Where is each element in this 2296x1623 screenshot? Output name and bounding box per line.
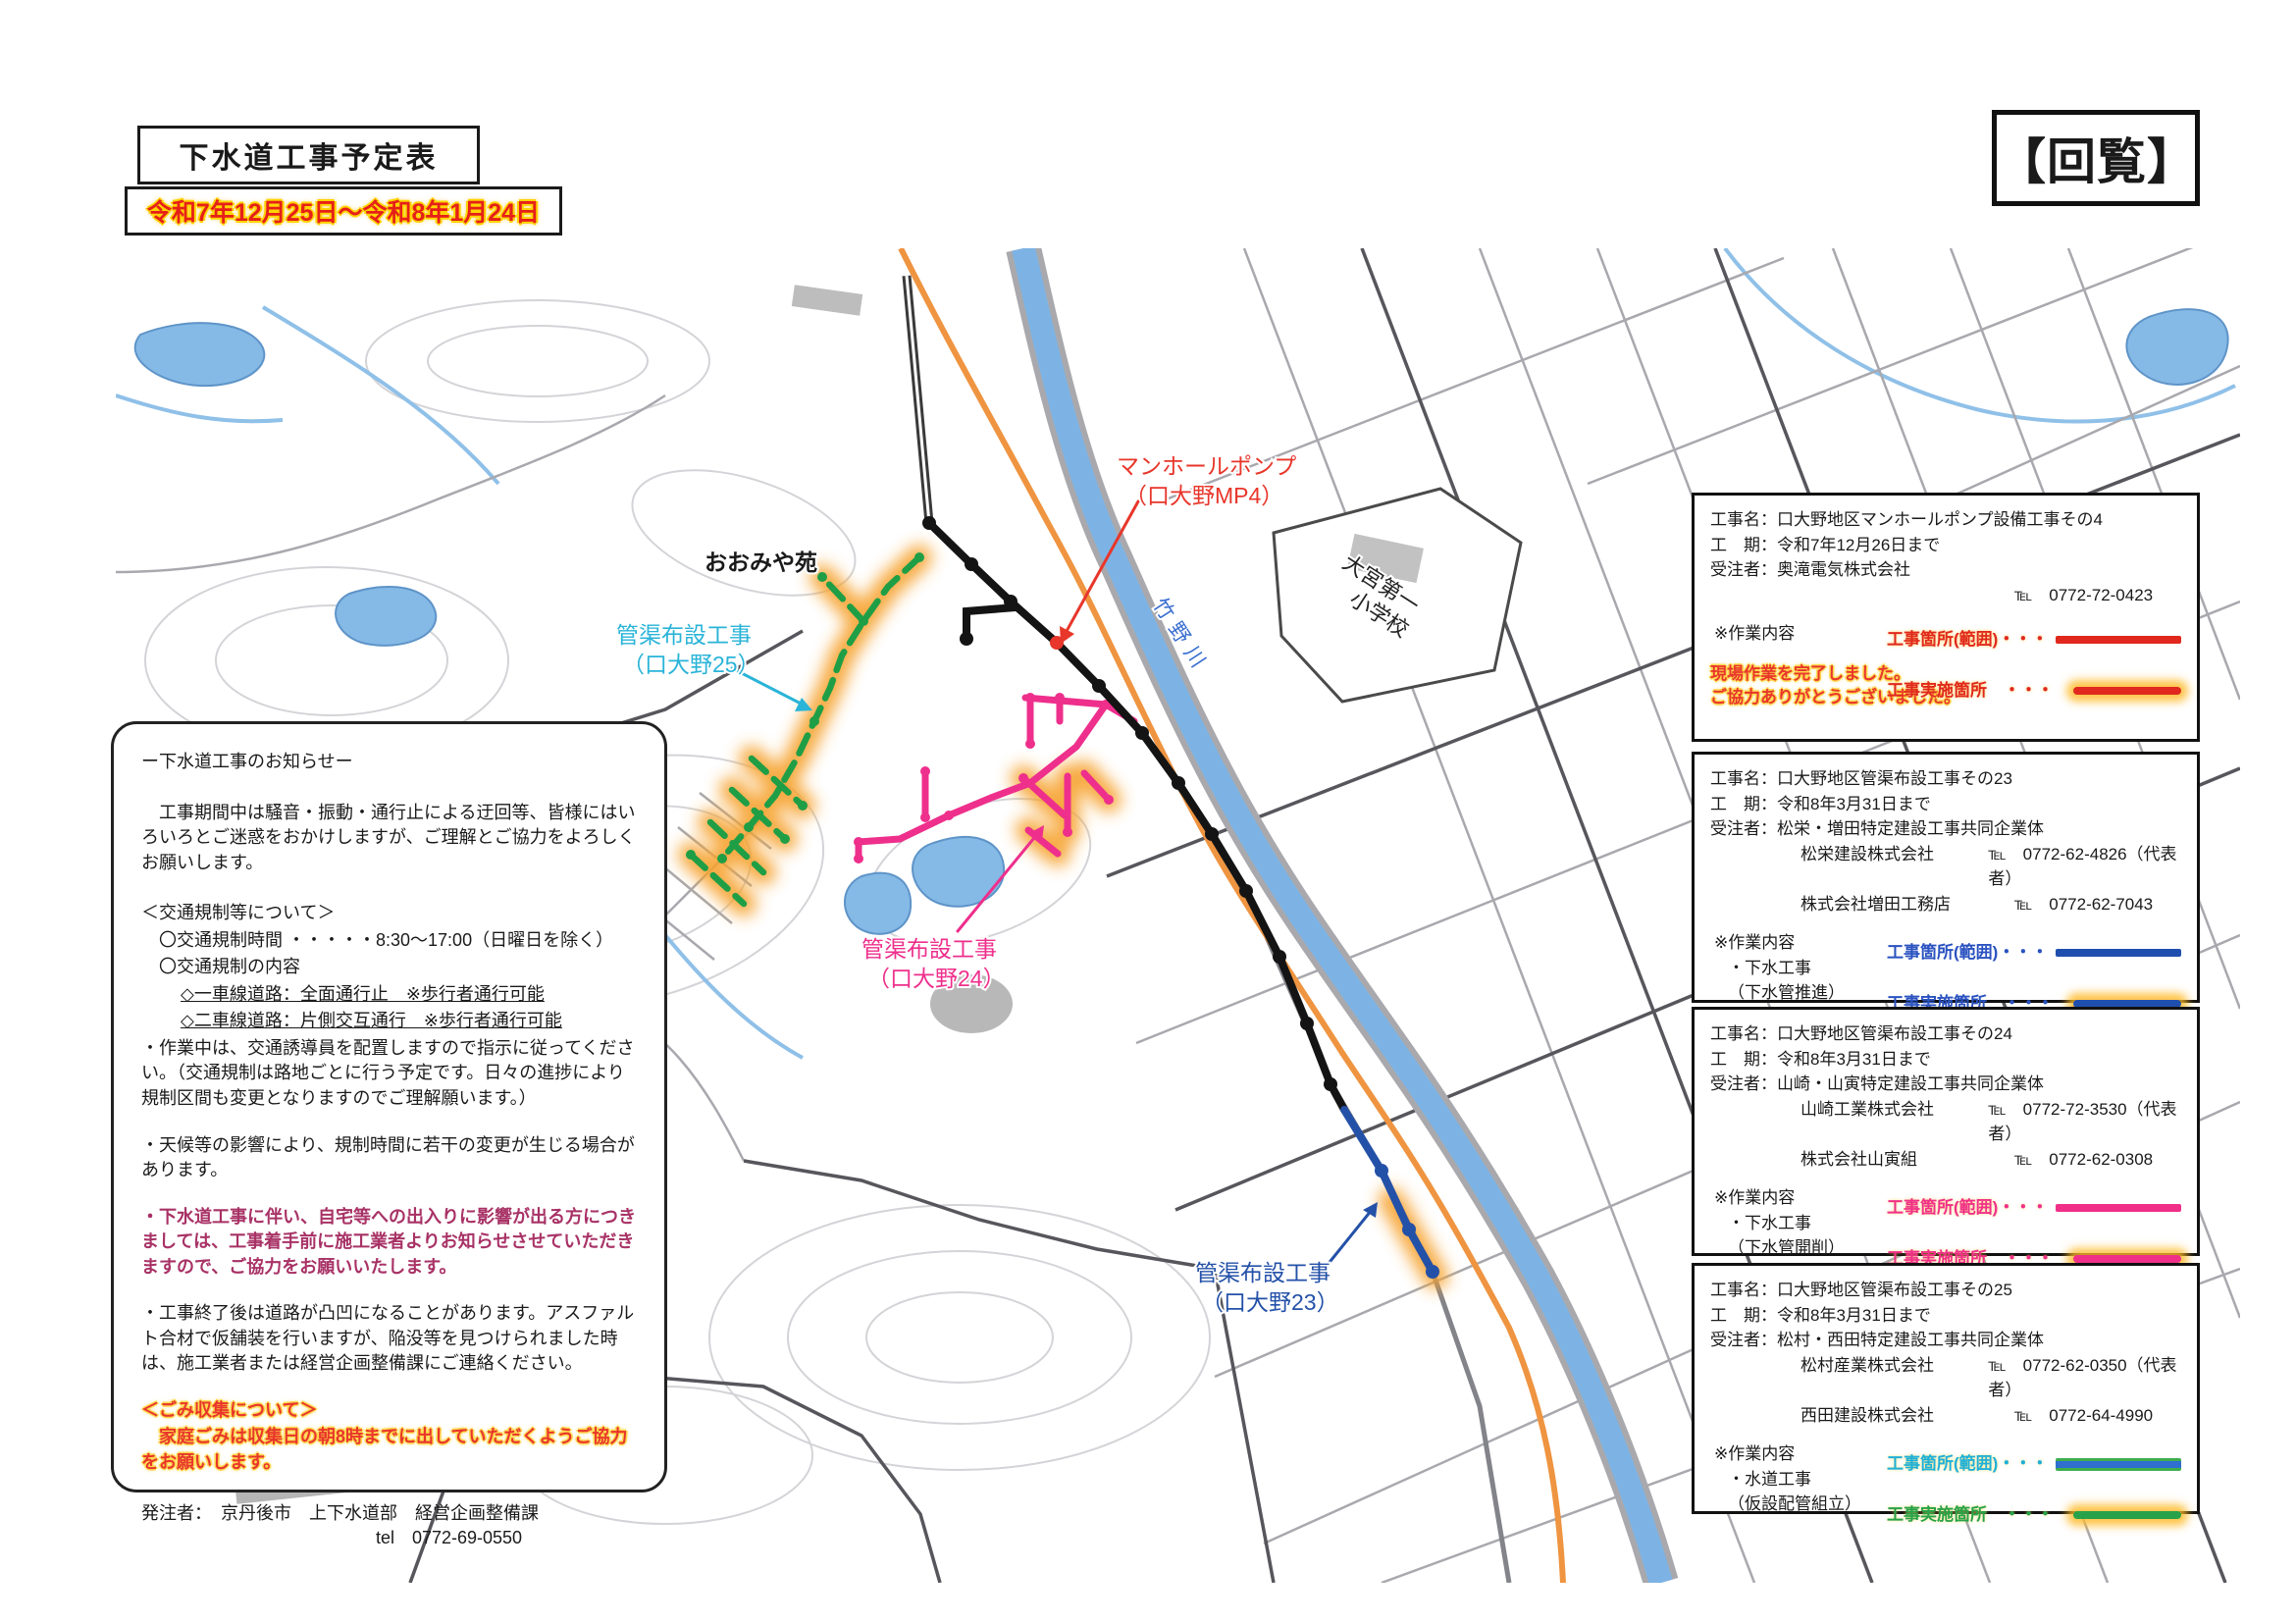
project-orderer: 受注者：松村・西田特定建設工事共同企業体 — [1710, 1328, 2183, 1353]
project-orderer: 受注者：山崎・山寅特定建設工事共同企業体 — [1710, 1072, 2183, 1097]
company-tel: ℡ 0772-72-3530（代表者） — [1988, 1097, 2183, 1147]
company-tel: ℡ 0772-72-0423 — [2014, 583, 2153, 608]
schedule-date-range: 令和7年12月25日～令和8年1月24日 — [125, 186, 562, 236]
mp4-label-line2: （口大野MP4） — [1124, 483, 1283, 508]
legend-range-label: 工事箇所(範囲)・・・ — [1887, 627, 2048, 653]
project-name: 工事名：口大野地区マンホールポンプ設備工事その4 — [1710, 507, 2183, 533]
company-row: 山崎工業株式会社 ℡ 0772-72-3530（代表者） — [1800, 1097, 2183, 1147]
route-23-blue — [1344, 1110, 1439, 1279]
project-box-25: 工事名：口大野地区管渠布設工事その25 工 期：令和8年3月31日まで 受注者：… — [1692, 1263, 2200, 1514]
river-takeno — [1023, 248, 1661, 1583]
legend-range-label: 工事箇所(範囲)・・・ — [1887, 1451, 2048, 1477]
route25-label-line2: （口大野25） — [622, 652, 760, 677]
company-row: 株式会社山寅組 ℡ 0772-62-0308 — [1800, 1147, 2183, 1173]
project-period: 工 期：令和7年12月26日まで — [1710, 533, 2183, 558]
scanned-notice-page: { "header": { "title": "下水道工事予定表", "date… — [0, 0, 2296, 1623]
legend-range-line — [2056, 636, 2181, 644]
company-tel: ℡ 0772-62-0350（代表者） — [1988, 1353, 2183, 1403]
project-box-23: 工事名：口大野地区管渠布設工事その23 工 期：令和8年3月31日まで 受注者：… — [1692, 752, 2200, 1003]
garbage-title: ＜ごみ収集について＞ — [141, 1398, 639, 1424]
note-traffic-guard: ・作業中は、交通誘導員を配置しますので指示に従ってください。（交通規制は路地ごと… — [141, 1036, 639, 1112]
company-name: 山崎工業株式会社 — [1800, 1097, 1988, 1147]
project-name: 工事名：口大野地区管渠布設工事その25 — [1710, 1278, 2183, 1303]
traffic-regulation-title: ＜交通規制等について＞ — [141, 901, 639, 926]
page-title: 下水道工事予定表 — [137, 126, 480, 184]
legend-range-line — [2056, 1458, 2181, 1471]
facility-label: おおみや苑 — [704, 550, 817, 575]
legend-range-label: 工事箇所(範囲)・・・ — [1887, 940, 2048, 966]
note-weather: ・天候等の影響により、規制時間に若干の変更が生じる場合があります。 — [141, 1133, 639, 1183]
project-box-mp4: 工事名：口大野地区マンホールポンプ設備工事その4 工 期：令和7年12月26日ま… — [1692, 493, 2200, 742]
company-name: 株式会社増田工務店 — [1800, 892, 2014, 917]
single-lane-rule: ◇一車線道路：全面通行止 ※歩行者通行可能 — [181, 982, 639, 1008]
company-name: 西田建設株式会社 — [1800, 1403, 2014, 1429]
mp4-label-line1: マンホールポンプ — [1117, 453, 1296, 479]
project-period: 工 期：令和8年3月31日まで — [1710, 1047, 2183, 1073]
orderer-line: 発注者： 京丹後市 上下水道部 経営企画整備課 — [141, 1501, 639, 1527]
route24-label-line1: 管渠布設工事 — [861, 936, 997, 962]
route-24-pink — [859, 698, 1134, 859]
legend-range-label: 工事箇所(範囲)・・・ — [1887, 1195, 2048, 1221]
company-tel: ℡ 0772-62-7043 — [2014, 892, 2153, 917]
project-name: 工事名：口大野地区管渠布設工事その24 — [1710, 1021, 2183, 1047]
company-row: 松村産業株式会社 ℡ 0772-62-0350（代表者） — [1800, 1353, 2183, 1403]
casing-road — [907, 276, 929, 523]
company-name: 松栄建設株式会社 — [1800, 842, 1988, 892]
legend-range-line — [2056, 1204, 2181, 1212]
garbage-body: 家庭ごみは収集日の朝8時までに出していただくようご協力をお願いします。 — [141, 1425, 639, 1475]
project-orderer: 受注者：松栄・増田特定建設工事共同企業体 — [1710, 816, 2183, 842]
company-tel: ℡ 0772-62-4826（代表者） — [1988, 842, 2183, 892]
orderer-tel: tel 0772-69-0550 — [259, 1526, 639, 1551]
traffic-regulation-time: 〇交通規制時間 ・・・・・8:30～17:00（日曜日を除く） — [159, 928, 639, 954]
note-access-impact: ・下水道工事に伴い、自宅等への出入りに影響が出る方につきましては、工事着手前に施… — [141, 1205, 639, 1281]
project-period: 工 期：令和8年3月31日まで — [1710, 792, 2183, 817]
main-road-orange — [901, 248, 1563, 1583]
company-row: 松栄建設株式会社 ℡ 0772-62-4826（代表者） — [1800, 842, 2183, 892]
company-name: 松村産業株式会社 — [1800, 1353, 1988, 1403]
circulation-badge: 【回覧】 — [1992, 110, 2200, 206]
legend-done-label: 工事実施箇所 ・・・ — [1887, 1502, 2054, 1528]
legend-done-line — [2073, 1511, 2181, 1519]
construction-notice-panel: ー下水道工事のお知らせー 工事期間中は騒音・振動・通行止による迂回等、皆様にはい… — [111, 721, 667, 1492]
route25-label-line1: 管渠布設工事 — [616, 622, 752, 648]
note-pavement: ・工事終了後は道路が凸凹になることがあります。アスファルト合材で仮舗装を行います… — [141, 1301, 639, 1377]
company-tel: ℡ 0772-64-4990 — [2014, 1403, 2153, 1429]
project-period: 工 期：令和8年3月31日まで — [1710, 1303, 2183, 1329]
legend-range-line — [2056, 949, 2181, 957]
legend: 工事箇所(範囲)・・・ 工事実施箇所 ・・・ — [1887, 623, 2181, 727]
legend-done-line — [2073, 687, 2181, 695]
company-name: 株式会社山寅組 — [1800, 1147, 2014, 1173]
route23-label-line1: 管渠布設工事 — [1195, 1260, 1331, 1285]
route24-label-line2: （口大野24） — [867, 966, 1006, 991]
legend: 工事箇所(範囲)・・・ 工事実施箇所 ・・・ — [1887, 1443, 2181, 1551]
company-name — [1800, 583, 2014, 608]
legend-done-line — [2073, 1255, 2181, 1263]
double-lane-rule: ◇二車線道路：片側交互通行 ※歩行者通行可能 — [181, 1009, 639, 1034]
notice-heading: ー下水道工事のお知らせー — [141, 750, 639, 775]
company-tel: ℡ 0772-62-0308 — [2014, 1147, 2153, 1173]
project-box-24: 工事名：口大野地区管渠布設工事その24 工 期：令和8年3月31日まで 受注者：… — [1692, 1007, 2200, 1256]
project-name: 工事名：口大野地区管渠布設工事その23 — [1710, 766, 2183, 792]
notice-intro: 工事期間中は騒音・振動・通行止による迂回等、皆様にはいろいろとご迷惑をおかけしま… — [141, 801, 639, 876]
legend-done-label: 工事実施箇所 ・・・ — [1887, 678, 2054, 704]
company-row: 西田建設株式会社 ℡ 0772-64-4990 — [1800, 1403, 2183, 1429]
route23-label-line2: （口大野23） — [1201, 1289, 1339, 1315]
company-row: 株式会社増田工務店 ℡ 0772-62-7043 — [1800, 892, 2183, 917]
company-row: ℡ 0772-72-0423 — [1800, 583, 2183, 608]
traffic-regulation-detail: 〇交通規制の内容 — [159, 955, 639, 980]
project-orderer: 受注者：奥滝電気株式会社 — [1710, 557, 2183, 583]
